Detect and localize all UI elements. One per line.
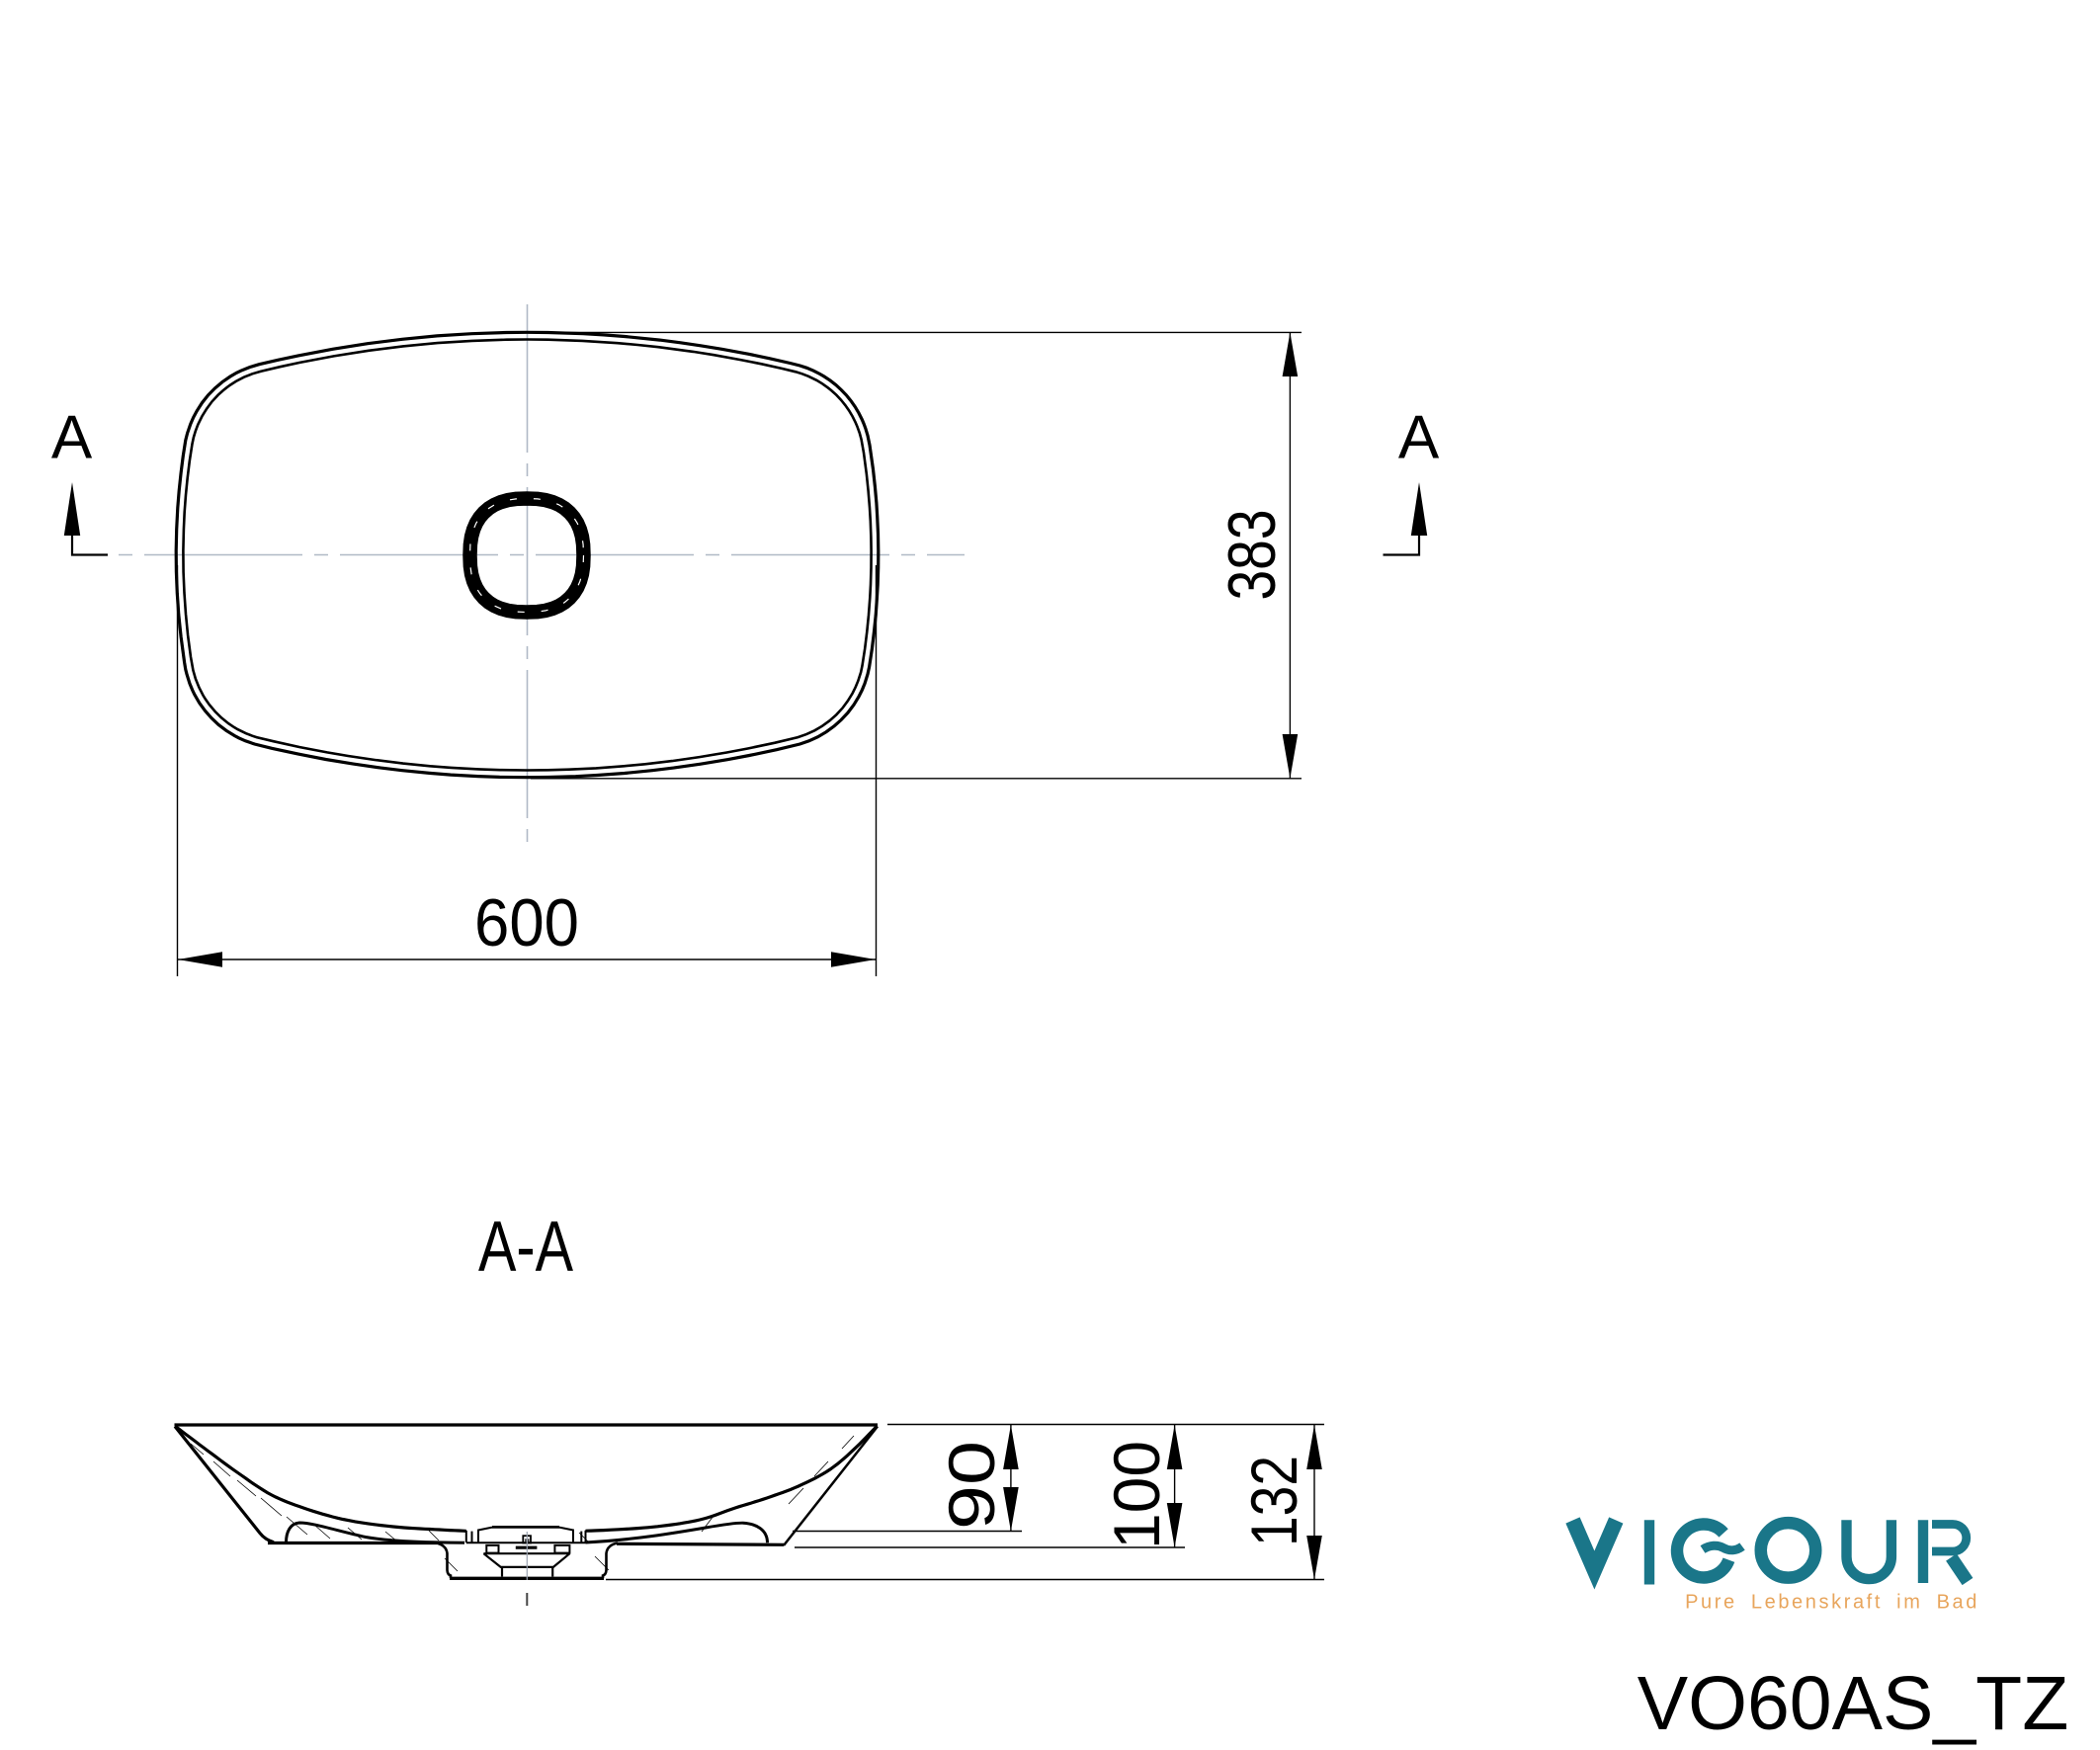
svg-text:VO60AS_TZ: VO60AS_TZ — [1638, 1661, 2069, 1746]
svg-text:A: A — [1398, 404, 1440, 472]
svg-text:A: A — [51, 404, 93, 472]
svg-text:90: 90 — [935, 1441, 1008, 1530]
svg-text:383: 383 — [1215, 510, 1290, 601]
svg-text:A-A: A-A — [478, 1208, 573, 1287]
svg-text:132: 132 — [1237, 1456, 1310, 1546]
svg-text:600: 600 — [474, 885, 579, 960]
svg-text:100: 100 — [1100, 1441, 1173, 1549]
svg-text:Pure Lebenskraft im Bad: Pure Lebenskraft im Bad — [1685, 1592, 1979, 1614]
